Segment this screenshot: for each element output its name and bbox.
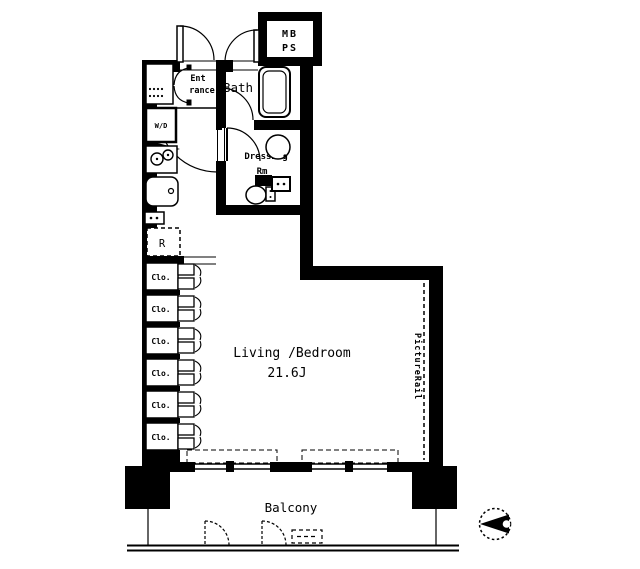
pipe-space-dot — [283, 183, 286, 186]
washbasin-faucet — [283, 154, 286, 157]
closet-door-arc — [195, 393, 201, 404]
closet-door-leaf — [178, 296, 194, 307]
balcony: Balcony — [127, 500, 459, 551]
closet-door-arc — [195, 277, 201, 288]
entrance-door-arc — [180, 26, 214, 60]
living-bedroom: Living /Bedroom 21.6J PictureRail — [187, 283, 424, 469]
picture-rail-label: PictureRail — [412, 333, 423, 400]
dressing-room: Dressing Rm — [244, 135, 290, 204]
closet-separator-bottom — [142, 450, 180, 462]
balcony-partition-arc — [205, 521, 229, 545]
closet-label: Clo. — [151, 273, 170, 282]
meter-door-leaf — [254, 30, 259, 62]
outlet-dot — [150, 217, 153, 220]
closet-label: Clo. — [151, 305, 170, 314]
floor-plan-drawing: MB PS En — [0, 0, 640, 569]
entrance-door-leaf — [177, 26, 183, 62]
closet-door-arc — [195, 405, 201, 416]
closet-door-leaf — [178, 392, 194, 403]
refrigerator-label: R — [159, 238, 166, 250]
closet-unit: Clo. — [146, 295, 201, 322]
wall-dressing-bottom — [216, 205, 313, 215]
stove-burner-dot — [167, 154, 169, 156]
shoe-cabinet — [146, 64, 173, 104]
closet-door-arc — [195, 425, 201, 436]
closet-unit: Clo. — [146, 327, 201, 354]
closet-door-arc — [195, 297, 201, 308]
closet-door-arc — [195, 341, 201, 352]
living-bedroom-label: Living /Bedroom — [233, 346, 351, 361]
column-left — [125, 466, 170, 509]
closet-door-leaf — [178, 360, 194, 371]
entrance-label-line2: rance — [189, 86, 215, 96]
outlet-box — [145, 212, 164, 224]
closet-door-arc — [195, 309, 201, 320]
closet-door-arc — [195, 361, 201, 372]
closet-door-leaf — [178, 438, 194, 449]
wall-step — [300, 266, 443, 280]
closet-label: Clo. — [151, 401, 170, 410]
toilet-bowl — [246, 186, 266, 204]
entrance-label-line1: Ent — [190, 74, 205, 84]
outlet-dot — [156, 217, 159, 220]
bath-room: Bath — [223, 67, 290, 117]
wall-bath-bottom — [254, 120, 300, 130]
closet-door-leaf — [178, 328, 194, 339]
closet-door-leaf — [178, 424, 194, 435]
closet-door-leaf — [178, 264, 194, 275]
meter-door-arc — [225, 30, 257, 62]
stove-burner-dot — [156, 158, 158, 160]
wall-right-upper — [300, 60, 313, 279]
floor-plan: MB PS En — [0, 0, 640, 569]
balcony-partition-arc — [262, 521, 286, 545]
living-bedroom-size: 21.6J — [267, 366, 306, 381]
closet-unit: Clo. — [146, 263, 201, 290]
compass — [480, 509, 511, 540]
closet-door-arc — [195, 373, 201, 384]
toilet-tank-dot — [270, 196, 272, 198]
wall-right-lower — [429, 266, 443, 472]
closet-door-leaf — [178, 406, 194, 417]
pipe-space-dot — [277, 183, 280, 186]
closet-door-arc — [195, 437, 201, 448]
closet-door-arc — [195, 265, 201, 276]
closet-label: Clo. — [151, 433, 170, 442]
closet-label: Clo. — [151, 369, 170, 378]
shoe-cabinet-door-jamb — [187, 65, 191, 70]
closet-unit: Clo. — [146, 391, 201, 418]
closet-door-leaf — [178, 278, 194, 289]
column-right — [412, 466, 457, 509]
meter-box-label-mb: MB — [282, 29, 298, 40]
closet-unit: Clo. — [146, 359, 201, 386]
balcony-label: Balcony — [265, 500, 318, 515]
pipe-space-box — [272, 177, 290, 191]
closet-door-arc — [195, 329, 201, 340]
dressing-label-line2: Rm — [257, 167, 268, 177]
closet-label: Clo. — [151, 337, 170, 346]
shoe-cabinet-door-jamb — [187, 100, 191, 105]
kitchen-strip: W/D R — [145, 108, 180, 256]
washer-dryer-label: W/D — [155, 122, 168, 130]
closet-door-leaf — [178, 342, 194, 353]
meter-box: MB PS — [258, 12, 322, 66]
bath-label: Bath — [223, 80, 253, 95]
compass-hub — [503, 520, 511, 528]
meter-box-label-ps: PS — [282, 43, 298, 54]
closet-unit: Clo. — [146, 423, 201, 450]
closet-door-leaf — [178, 310, 194, 321]
closet-door-leaf — [178, 374, 194, 385]
